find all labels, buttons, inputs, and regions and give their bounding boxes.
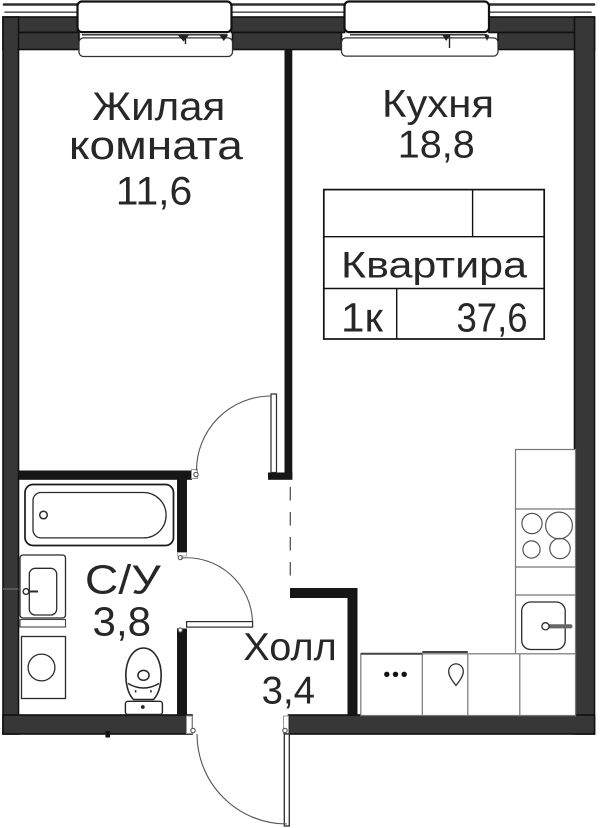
svg-text:Холл: Холл — [243, 626, 336, 669]
svg-text:Квартира: Квартира — [341, 245, 527, 286]
svg-text:18,8: 18,8 — [398, 123, 475, 166]
svg-text:комната: комната — [69, 124, 244, 168]
svg-text:Кухня: Кухня — [382, 83, 494, 126]
svg-text:3,4: 3,4 — [262, 669, 315, 712]
svg-text:37,6: 37,6 — [457, 294, 528, 340]
svg-text:Жилая: Жилая — [92, 85, 225, 129]
svg-text:С/У: С/У — [85, 556, 162, 602]
svg-text:1к: 1к — [341, 294, 384, 340]
svg-text:11,6: 11,6 — [116, 169, 193, 213]
svg-text:3,8: 3,8 — [93, 599, 152, 645]
